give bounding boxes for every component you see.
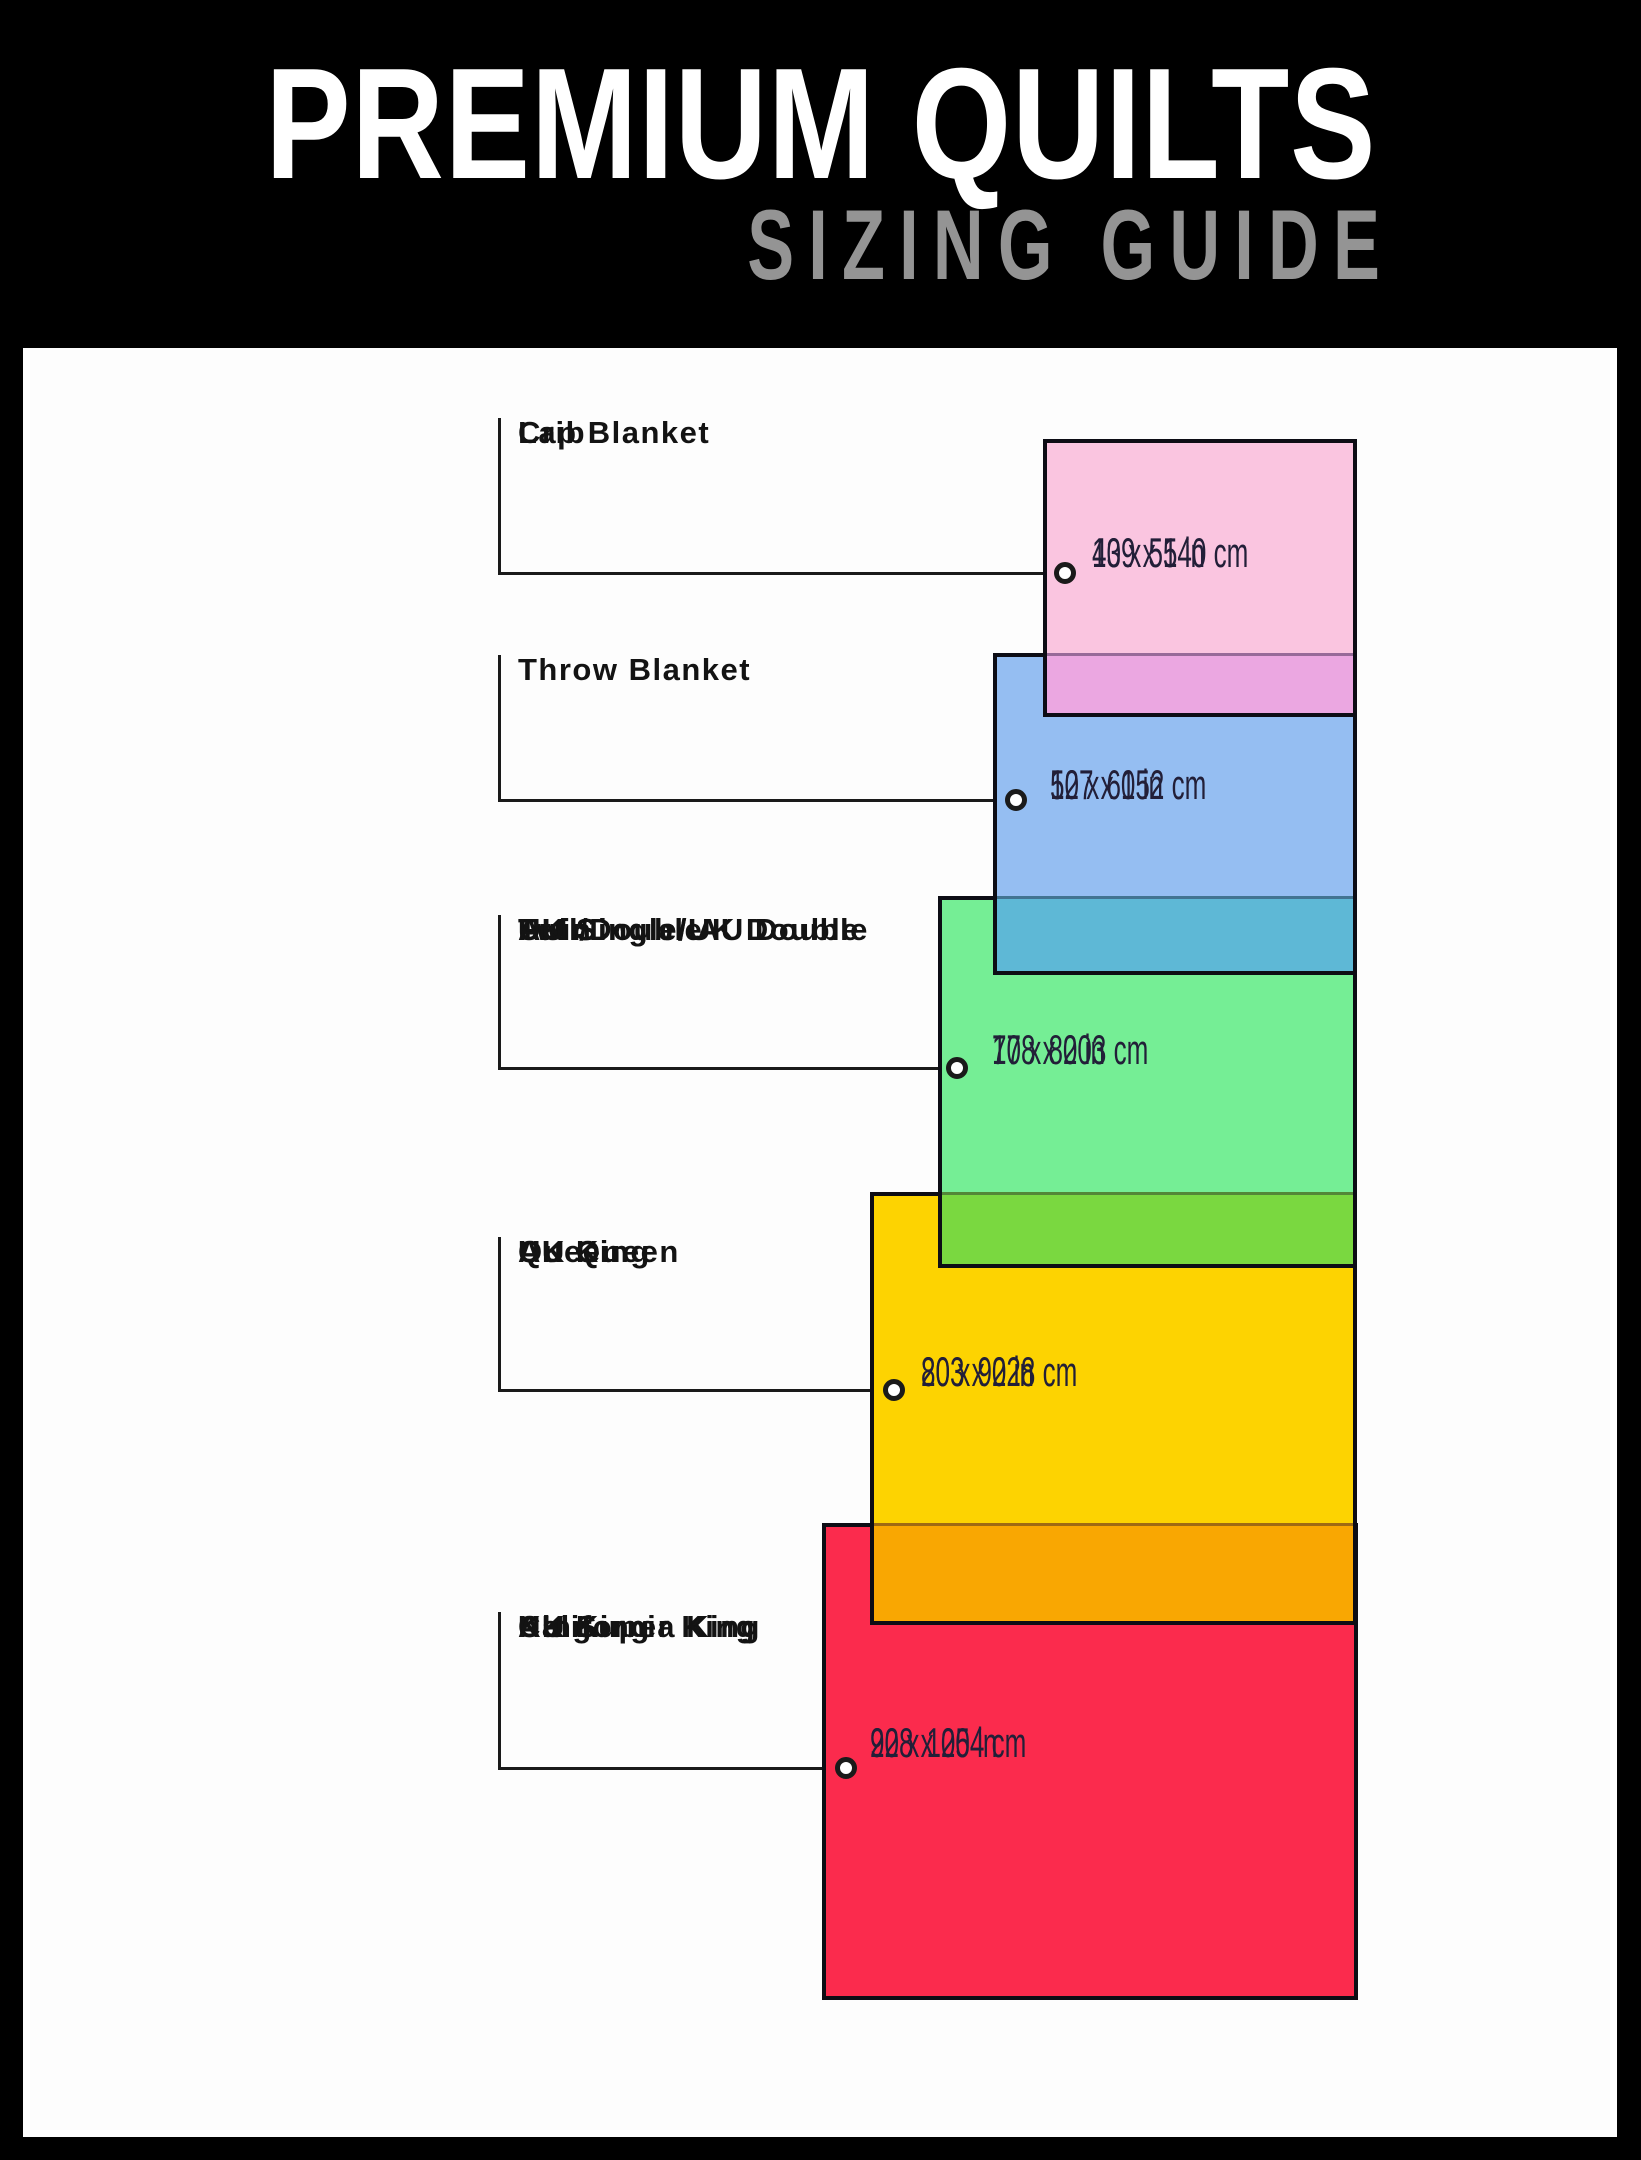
overlap-band [874, 1523, 1353, 1621]
label-tick-line [498, 418, 501, 573]
ring-marker-icon [835, 1757, 857, 1779]
ring-marker-icon [1054, 562, 1076, 584]
overlap-band [942, 1192, 1353, 1264]
label-tick-line [498, 1237, 501, 1390]
dimension-cm: 178 x 203 cm [992, 1028, 1148, 1072]
ring-marker-icon [1005, 789, 1027, 811]
overlap-band [1047, 653, 1353, 713]
quilt-rect [1043, 439, 1357, 717]
label-tick-line [498, 915, 501, 1068]
content-panel [23, 348, 1617, 2137]
leader-line [498, 572, 1055, 575]
dimension-cm: 109 x 140 cm [1092, 531, 1248, 575]
ring-marker-icon [946, 1057, 968, 1079]
dimension-cm: 228 x 254 cm [870, 1721, 1026, 1765]
page-subtitle: SIZING GUIDE [483, 195, 1394, 294]
size-label: AU Queen [518, 1234, 680, 1269]
label-tick-line [498, 1612, 501, 1768]
page-title: PREMIUM QUILTS [0, 45, 1641, 203]
leader-line [498, 1067, 947, 1070]
size-label: Crib [518, 415, 586, 450]
leader-line [498, 1767, 836, 1770]
dimension-cm: 203 x 228 cm [921, 1350, 1077, 1394]
quilt-sizing-infographic: { "header": { "title": "PREMIUM QUILTS",… [0, 0, 1641, 2160]
dimension-cm: 127 x 152 cm [1050, 763, 1206, 807]
leader-line [498, 799, 1006, 802]
size-label: AU King [518, 1609, 651, 1644]
overlap-band [997, 896, 1353, 971]
ring-marker-icon [883, 1379, 905, 1401]
leader-line [498, 1389, 884, 1392]
size-label: Throw Blanket [518, 652, 751, 687]
label-tick-line [498, 655, 501, 800]
size-label: AU Single/ AU Double [518, 912, 869, 947]
